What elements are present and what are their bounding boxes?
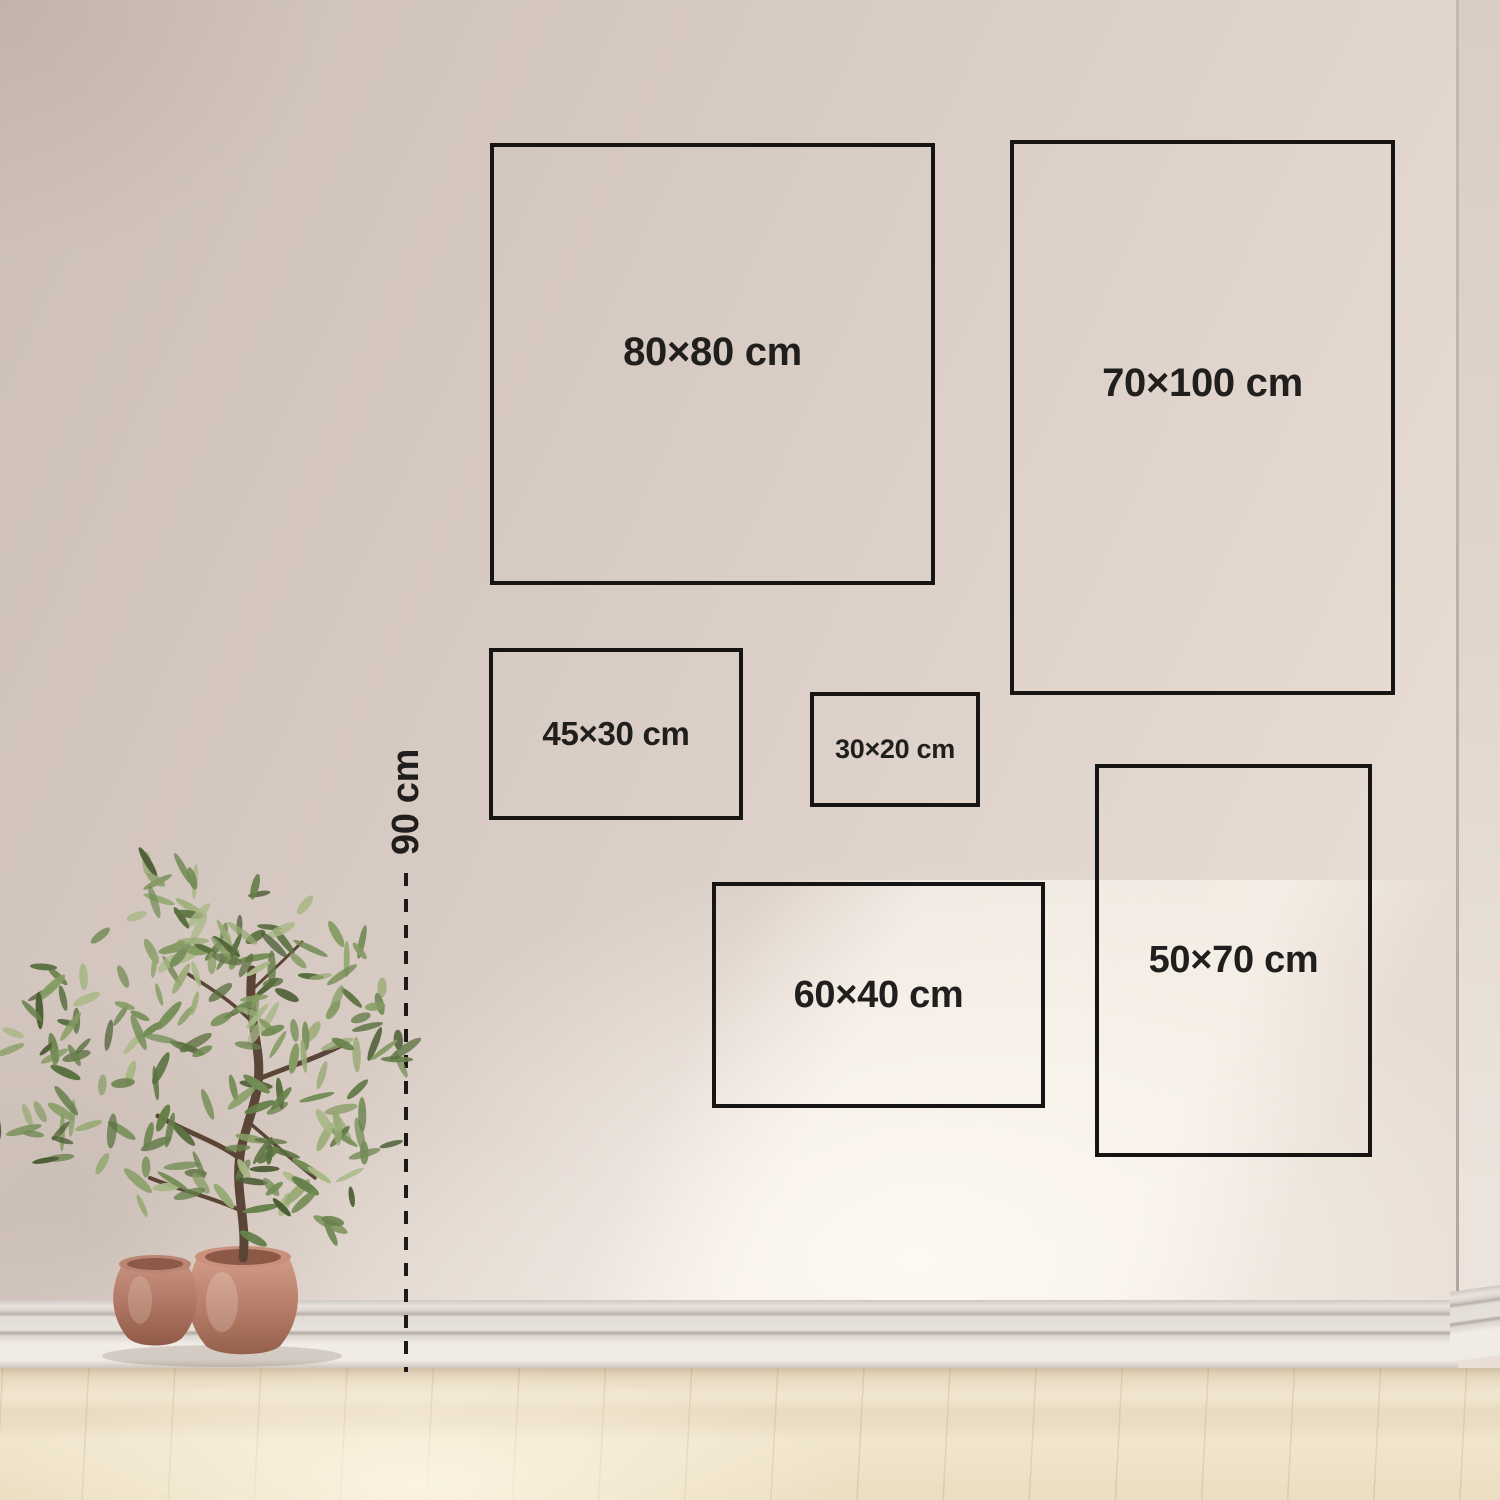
size-box-30x20: 30×20 cm	[810, 692, 980, 807]
size-box-80x80: 80×80 cm	[490, 143, 935, 585]
size-label-70x100: 70×100 cm	[1102, 361, 1303, 406]
right-wall-panel	[1459, 0, 1500, 1302]
pot-small	[113, 1255, 197, 1346]
size-box-70x100: 70×100 cm	[1010, 140, 1395, 695]
baseboard-right	[1450, 1285, 1500, 1362]
size-box-60x40: 60×40 cm	[712, 882, 1045, 1108]
size-box-50x70: 50×70 cm	[1095, 764, 1372, 1157]
size-label-50x70: 50×70 cm	[1149, 939, 1319, 982]
wall-corner-line	[1456, 0, 1459, 1305]
size-label-30x20: 30×20 cm	[835, 734, 955, 765]
plant-foliage	[0, 846, 423, 1250]
size-box-45x30: 45×30 cm	[489, 648, 743, 820]
potted-plant	[0, 840, 440, 1400]
size-guide-scene: 80×80 cm 70×100 cm 45×30 cm 30×20 cm 60×…	[0, 0, 1500, 1500]
size-label-60x40: 60×40 cm	[794, 974, 964, 1017]
size-label-45x30: 45×30 cm	[542, 715, 689, 753]
size-label-80x80: 80×80 cm	[623, 330, 802, 375]
